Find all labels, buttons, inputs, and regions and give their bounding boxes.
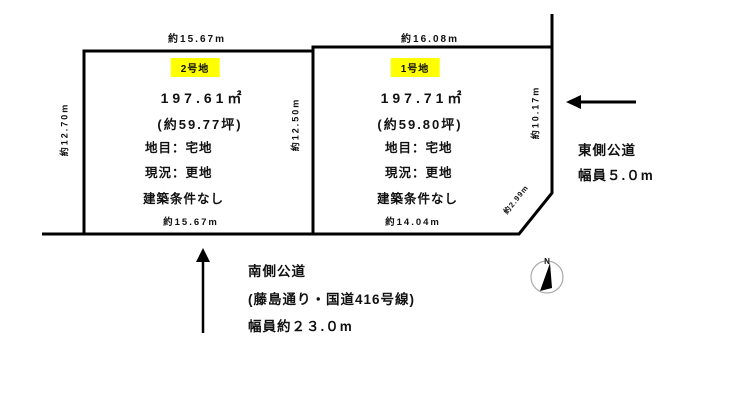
plot2-left-dimension: 約12.70m xyxy=(58,90,71,170)
plot1-land-category: 地目：宅地 xyxy=(385,137,453,156)
plot2-land-category: 地目：宅地 xyxy=(145,137,213,156)
plot2-current-state: 現況：更地 xyxy=(145,162,213,181)
plot1-bottom-dimension: 約14.04m xyxy=(385,214,441,228)
plot2-top-dimension: 約15.67m xyxy=(168,30,226,45)
plot1-area-tsubo: (約59.80坪) xyxy=(377,114,462,133)
land-plot-diagram: 約15.67m 約16.08m 約12.70m 約12.50m 約10.17m … xyxy=(0,0,740,405)
east-road-width: 幅員５.０m xyxy=(578,164,654,184)
plot1-name-badge: 1号地 xyxy=(391,58,440,77)
east-road-arrow-icon xyxy=(566,95,636,109)
plot2-area-tsubo: (約59.77坪) xyxy=(157,114,242,133)
plot2-right-dimension: 約12.50m xyxy=(289,85,302,165)
plot1-building-condition: 建築条件なし xyxy=(377,188,458,207)
plot2-name-badge: 2号地 xyxy=(171,58,220,77)
plot1-current-state: 現況：更地 xyxy=(385,162,453,181)
south-road-name: 南側公道 xyxy=(248,260,306,280)
diagram-line-art xyxy=(0,0,740,405)
plot2-building-condition: 建築条件なし xyxy=(143,188,224,207)
plot2-area: 197.61㎡ xyxy=(161,88,246,108)
plot1-right-dimension: 約10.17m xyxy=(529,73,542,153)
east-road-name: 東側公道 xyxy=(578,139,636,159)
south-road-arrow-icon xyxy=(196,248,210,333)
plot2-bottom-dimension: 約15.67m xyxy=(163,214,219,228)
plot1-area: 197.71㎡ xyxy=(381,88,466,108)
compass-north-label: N xyxy=(544,257,550,266)
south-road-width: 幅員約２３.０m xyxy=(248,315,353,335)
plot1-top-dimension: 約16.08m xyxy=(401,30,459,45)
south-road-detail: (藤島通り・国道416号線) xyxy=(248,288,415,308)
